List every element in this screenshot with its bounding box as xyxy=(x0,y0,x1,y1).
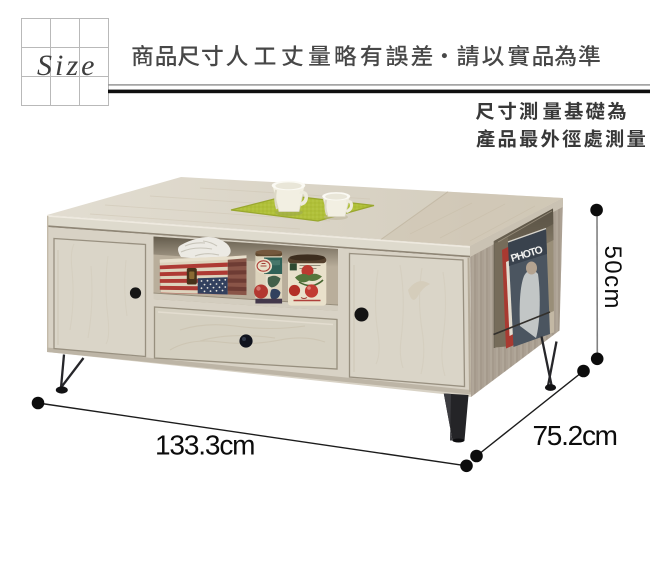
svg-text:50cm: 50cm xyxy=(599,246,626,309)
svg-text:133.3cm: 133.3cm xyxy=(155,429,256,460)
svg-text:Size: Size xyxy=(37,49,95,82)
svg-text:75.2cm: 75.2cm xyxy=(533,420,619,451)
